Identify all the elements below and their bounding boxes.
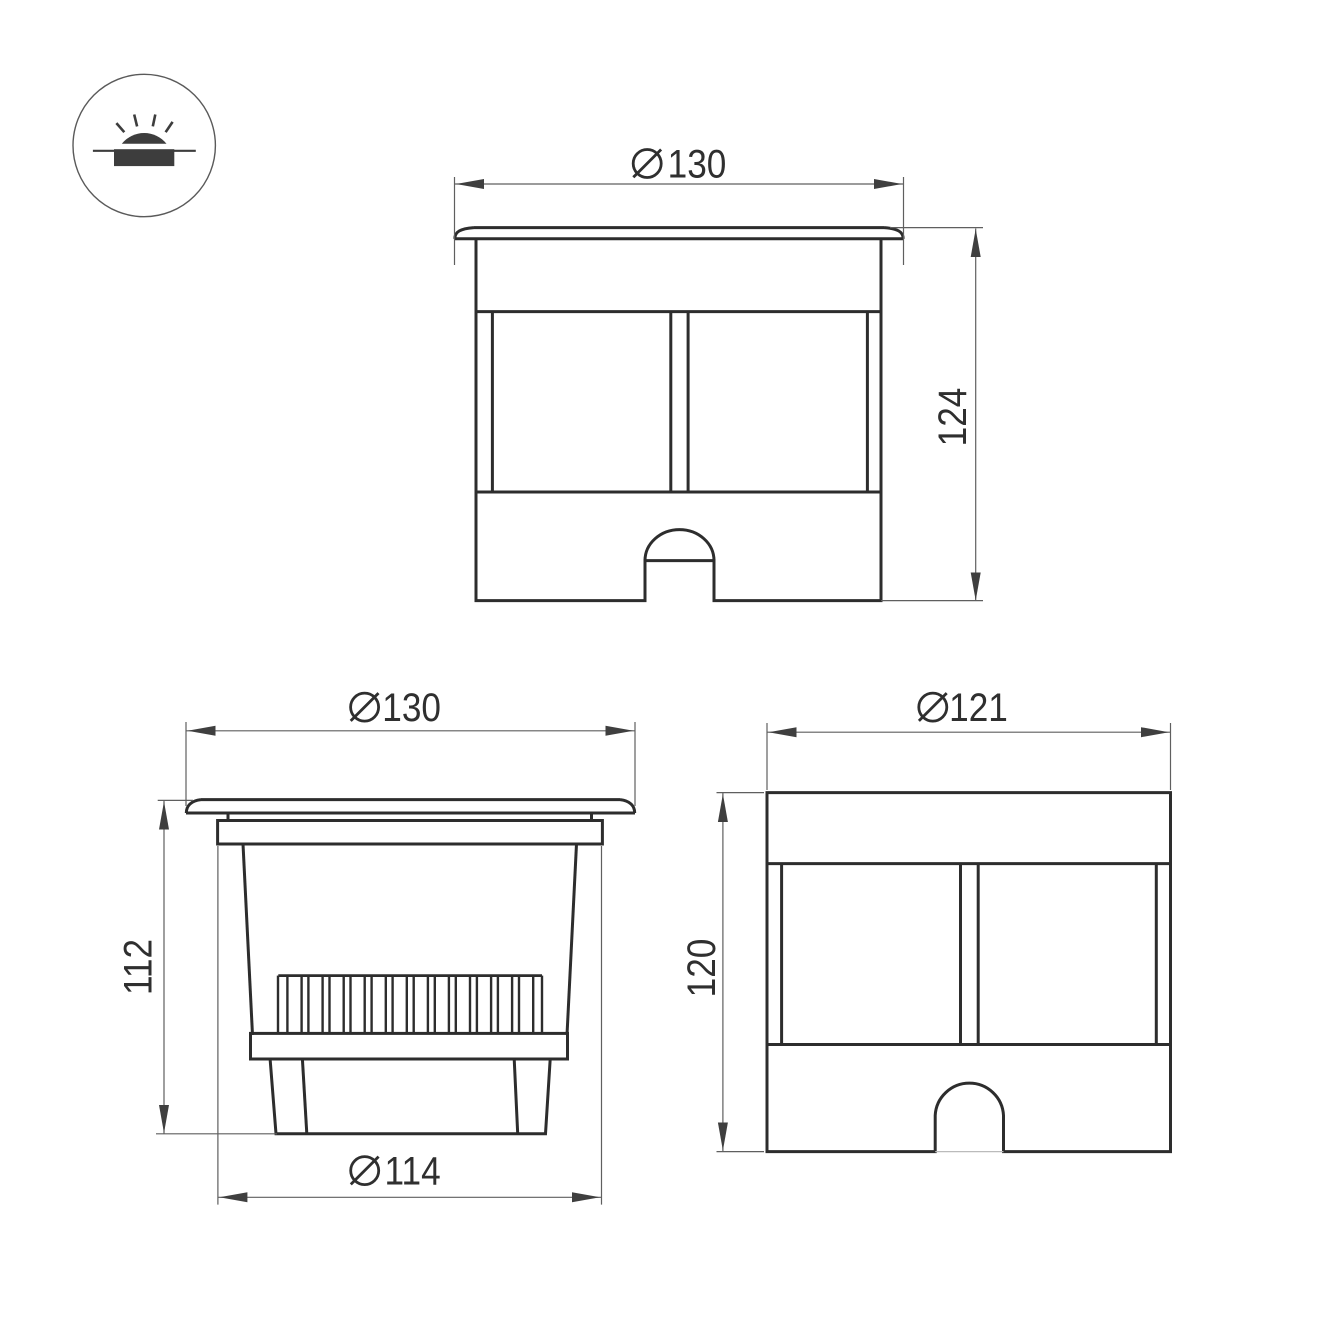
svg-text:130: 130 [382, 685, 441, 730]
svg-text:130: 130 [668, 141, 727, 186]
svg-text:121: 121 [949, 685, 1008, 730]
svg-text:114: 114 [385, 1148, 441, 1193]
svg-text:124: 124 [930, 388, 975, 447]
svg-text:112: 112 [115, 939, 160, 995]
svg-text:120: 120 [679, 939, 724, 998]
